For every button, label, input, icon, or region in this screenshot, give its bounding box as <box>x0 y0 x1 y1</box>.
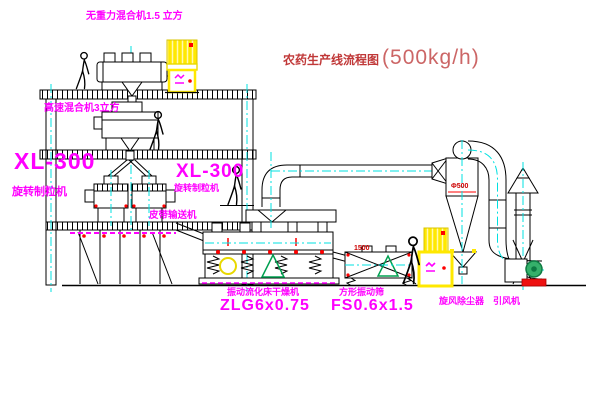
control-cabinet-right <box>419 228 452 286</box>
label-cyclone: 旋风除尘器 <box>439 297 484 306</box>
y-split-pipe <box>108 160 152 176</box>
worker-top-floor <box>76 53 88 89</box>
label-dryer-model: ZLG6x0.75 <box>220 298 310 314</box>
label-granulator-left-name: 旋转制粒机 <box>12 187 67 198</box>
title-text: 农药生产线流程图 <box>283 51 379 68</box>
dim-cyclone-diameter: Φ500 <box>451 183 468 190</box>
drawing-title: 农药生产线流程图 (500kg/h) <box>283 46 480 70</box>
label-granulator-right-model: XL-300 <box>176 162 244 181</box>
label-granulator-left-model: XL-300 <box>14 150 95 173</box>
label-high-speed-mixer: 高速混合机3立方 <box>44 104 120 114</box>
vibrating-sieve <box>333 246 416 286</box>
cyclone-to-fan-duct <box>468 141 544 279</box>
label-sieve-model: FS0.6x1.5 <box>331 298 414 314</box>
title-capacity: (500kg/h) <box>382 46 480 70</box>
label-sieve-name: 方形振动筛 <box>339 288 384 297</box>
label-granulator-right-name: 旋转制粒机 <box>174 184 219 193</box>
control-cabinet-top <box>165 40 199 93</box>
induced-draft-fan <box>505 259 546 286</box>
dim-sieve-length: 1500 <box>354 245 370 252</box>
label-fan: 引风机 <box>493 297 520 306</box>
dryer-exhaust-duct <box>246 152 458 232</box>
granulator-left <box>85 176 128 222</box>
label-dryer-name: 振动流化床干燥机 <box>227 288 299 297</box>
label-gravity-free-mixer: 无重力混合机1.5 立方 <box>86 12 183 22</box>
label-belt-conveyor: 皮带输送机 <box>149 211 197 221</box>
process-flow-drawing: 农药生产线流程图 (500kg/h) 无重力混合机1.5 立方 高速混合机3立方… <box>0 0 600 403</box>
